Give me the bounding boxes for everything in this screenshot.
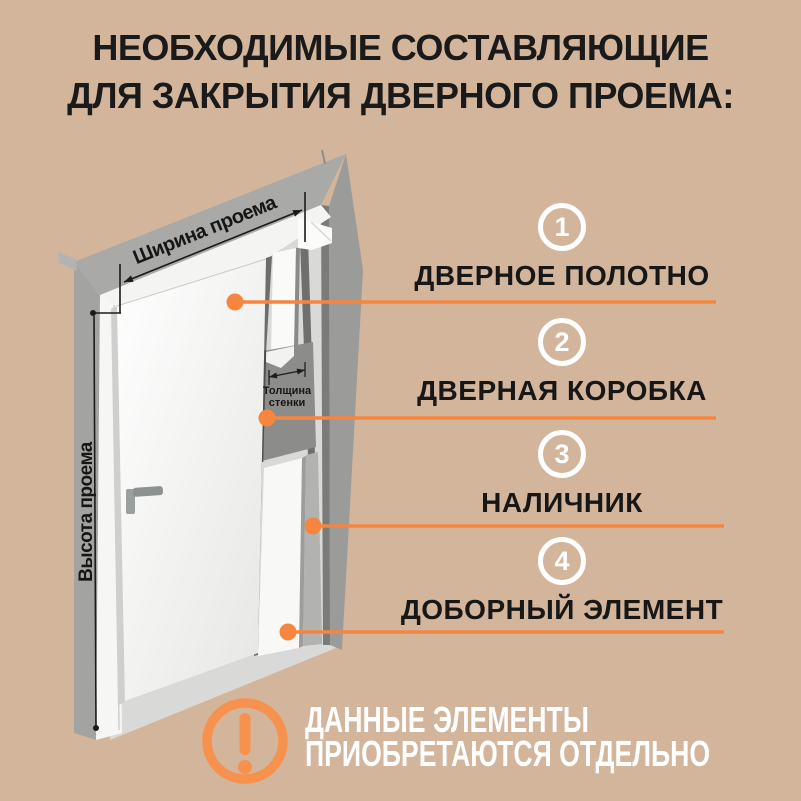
thickness-label-line1: Толщина <box>263 385 312 397</box>
item-1-number-badge: 1 <box>538 203 586 251</box>
item-3-label: НАЛИЧНИК <box>481 487 643 519</box>
exclamation-icon <box>198 694 292 788</box>
item-2-label: ДВЕРНАЯ КОРОБКА <box>417 375 707 407</box>
title-line-1: НЕОБХОДИМЫЕ СОСТАВЛЯЮЩИЕ <box>0 24 801 72</box>
height-dimension-label: Высота проема <box>76 441 97 582</box>
callout-dot-4 <box>280 624 297 641</box>
item-4-number-badge: 4 <box>538 537 586 585</box>
legend-item-door-frame: 2 ДВЕРНАЯ КОРОБКА <box>380 318 744 407</box>
note-line-2: ПРИОБРЕТАЮТСЯ ОТДЕЛЬНО <box>305 737 710 771</box>
purchase-note: ДАННЫЕ ЭЛЕМЕНТЫ ПРИОБРЕТАЮТСЯ ОТДЕЛЬНО <box>305 703 710 771</box>
legend-item-casing: 3 НАЛИЧНИК <box>380 430 744 519</box>
callout-dot-3 <box>305 518 322 535</box>
note-line-1: ДАННЫЕ ЭЛЕМЕНТЫ <box>305 703 710 737</box>
item-3-number-badge: 3 <box>538 430 586 478</box>
item-4-label: ДОБОРНЫЙ ЭЛЕМЕНТ <box>401 594 723 626</box>
item-1-label: ДВЕРНОЕ ПОЛОТНО <box>414 260 709 292</box>
page-title: НЕОБХОДИМЫЕ СОСТАВЛЯЮЩИЕ ДЛЯ ЗАКРЫТИЯ ДВ… <box>0 24 801 120</box>
infographic-root: Ширина проема Высота проема Толщина стен… <box>0 0 801 801</box>
item-2-number-badge: 2 <box>538 318 586 366</box>
callout-dot-1 <box>227 294 244 311</box>
title-line-2: ДЛЯ ЗАКРЫТИЯ ДВЕРНОГО ПРОЕМА: <box>0 72 801 120</box>
legend-item-door-leaf: 1 ДВЕРНОЕ ПОЛОТНО <box>380 203 744 292</box>
callout-dot-2 <box>259 410 276 427</box>
thickness-label-line2: стенки <box>269 397 306 409</box>
legend-item-extension: 4 ДОБОРНЫЙ ЭЛЕМЕНТ <box>380 537 744 626</box>
door-leaf <box>111 259 266 706</box>
